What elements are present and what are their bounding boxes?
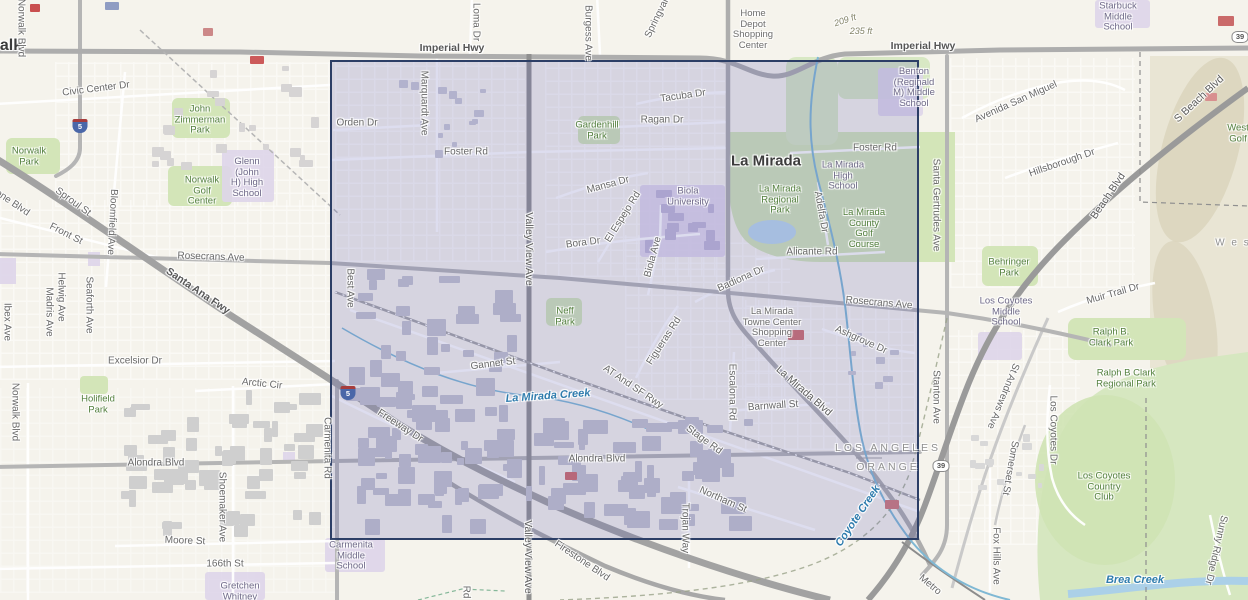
building: [129, 476, 147, 489]
building: [263, 144, 269, 150]
building: [1023, 434, 1029, 442]
building: [220, 513, 234, 527]
building: [163, 521, 172, 536]
building: [1218, 16, 1234, 26]
building: [186, 438, 196, 451]
building: [975, 463, 984, 469]
building: [249, 125, 256, 131]
building: [282, 66, 289, 71]
building: [299, 160, 312, 167]
selection-extent[interactable]: [330, 60, 919, 540]
building: [126, 465, 147, 471]
building: [260, 448, 272, 465]
building: [980, 441, 988, 446]
building: [288, 404, 297, 410]
building: [152, 161, 159, 167]
building: [978, 485, 987, 490]
building: [30, 4, 40, 12]
building: [294, 472, 306, 480]
building: [290, 148, 301, 157]
building: [174, 108, 183, 118]
building: [161, 430, 175, 440]
building: [232, 417, 247, 428]
building: [176, 469, 188, 483]
building: [238, 516, 253, 523]
building: [181, 162, 192, 170]
building: [163, 447, 176, 464]
building: [222, 451, 233, 466]
building: [259, 469, 273, 481]
building: [284, 444, 294, 451]
building: [215, 98, 225, 106]
building: [294, 433, 315, 442]
building: [997, 479, 1005, 486]
building: [130, 407, 137, 415]
building: [1028, 474, 1036, 479]
building: [264, 428, 272, 442]
building: [246, 390, 253, 404]
building: [239, 123, 245, 132]
building: [250, 56, 264, 64]
building: [234, 525, 249, 537]
building: [253, 421, 270, 429]
building: [105, 2, 119, 10]
building: [311, 117, 318, 128]
building: [129, 490, 137, 507]
building: [210, 70, 217, 78]
building: [204, 475, 219, 491]
building: [309, 512, 320, 525]
building: [207, 91, 219, 97]
map-canvas[interactable]: NorwalkLa MiradaImperial HwyImperial Hwy…: [0, 0, 1248, 600]
building: [272, 421, 278, 438]
building: [299, 393, 321, 405]
building: [1038, 483, 1042, 488]
building: [247, 476, 260, 489]
building: [128, 455, 144, 464]
building: [985, 459, 994, 465]
building: [293, 510, 302, 520]
building: [203, 28, 213, 36]
building: [124, 445, 137, 456]
building: [167, 158, 174, 166]
building: [970, 460, 976, 467]
building: [1205, 93, 1217, 101]
building: [187, 417, 199, 432]
building: [291, 461, 308, 471]
building: [215, 446, 222, 456]
building: [1016, 472, 1022, 476]
building: [216, 144, 227, 153]
building: [298, 445, 314, 459]
building: [1039, 464, 1044, 472]
building: [971, 435, 978, 441]
building: [281, 84, 292, 92]
building: [1022, 443, 1031, 450]
building: [245, 491, 267, 499]
building: [163, 125, 172, 135]
